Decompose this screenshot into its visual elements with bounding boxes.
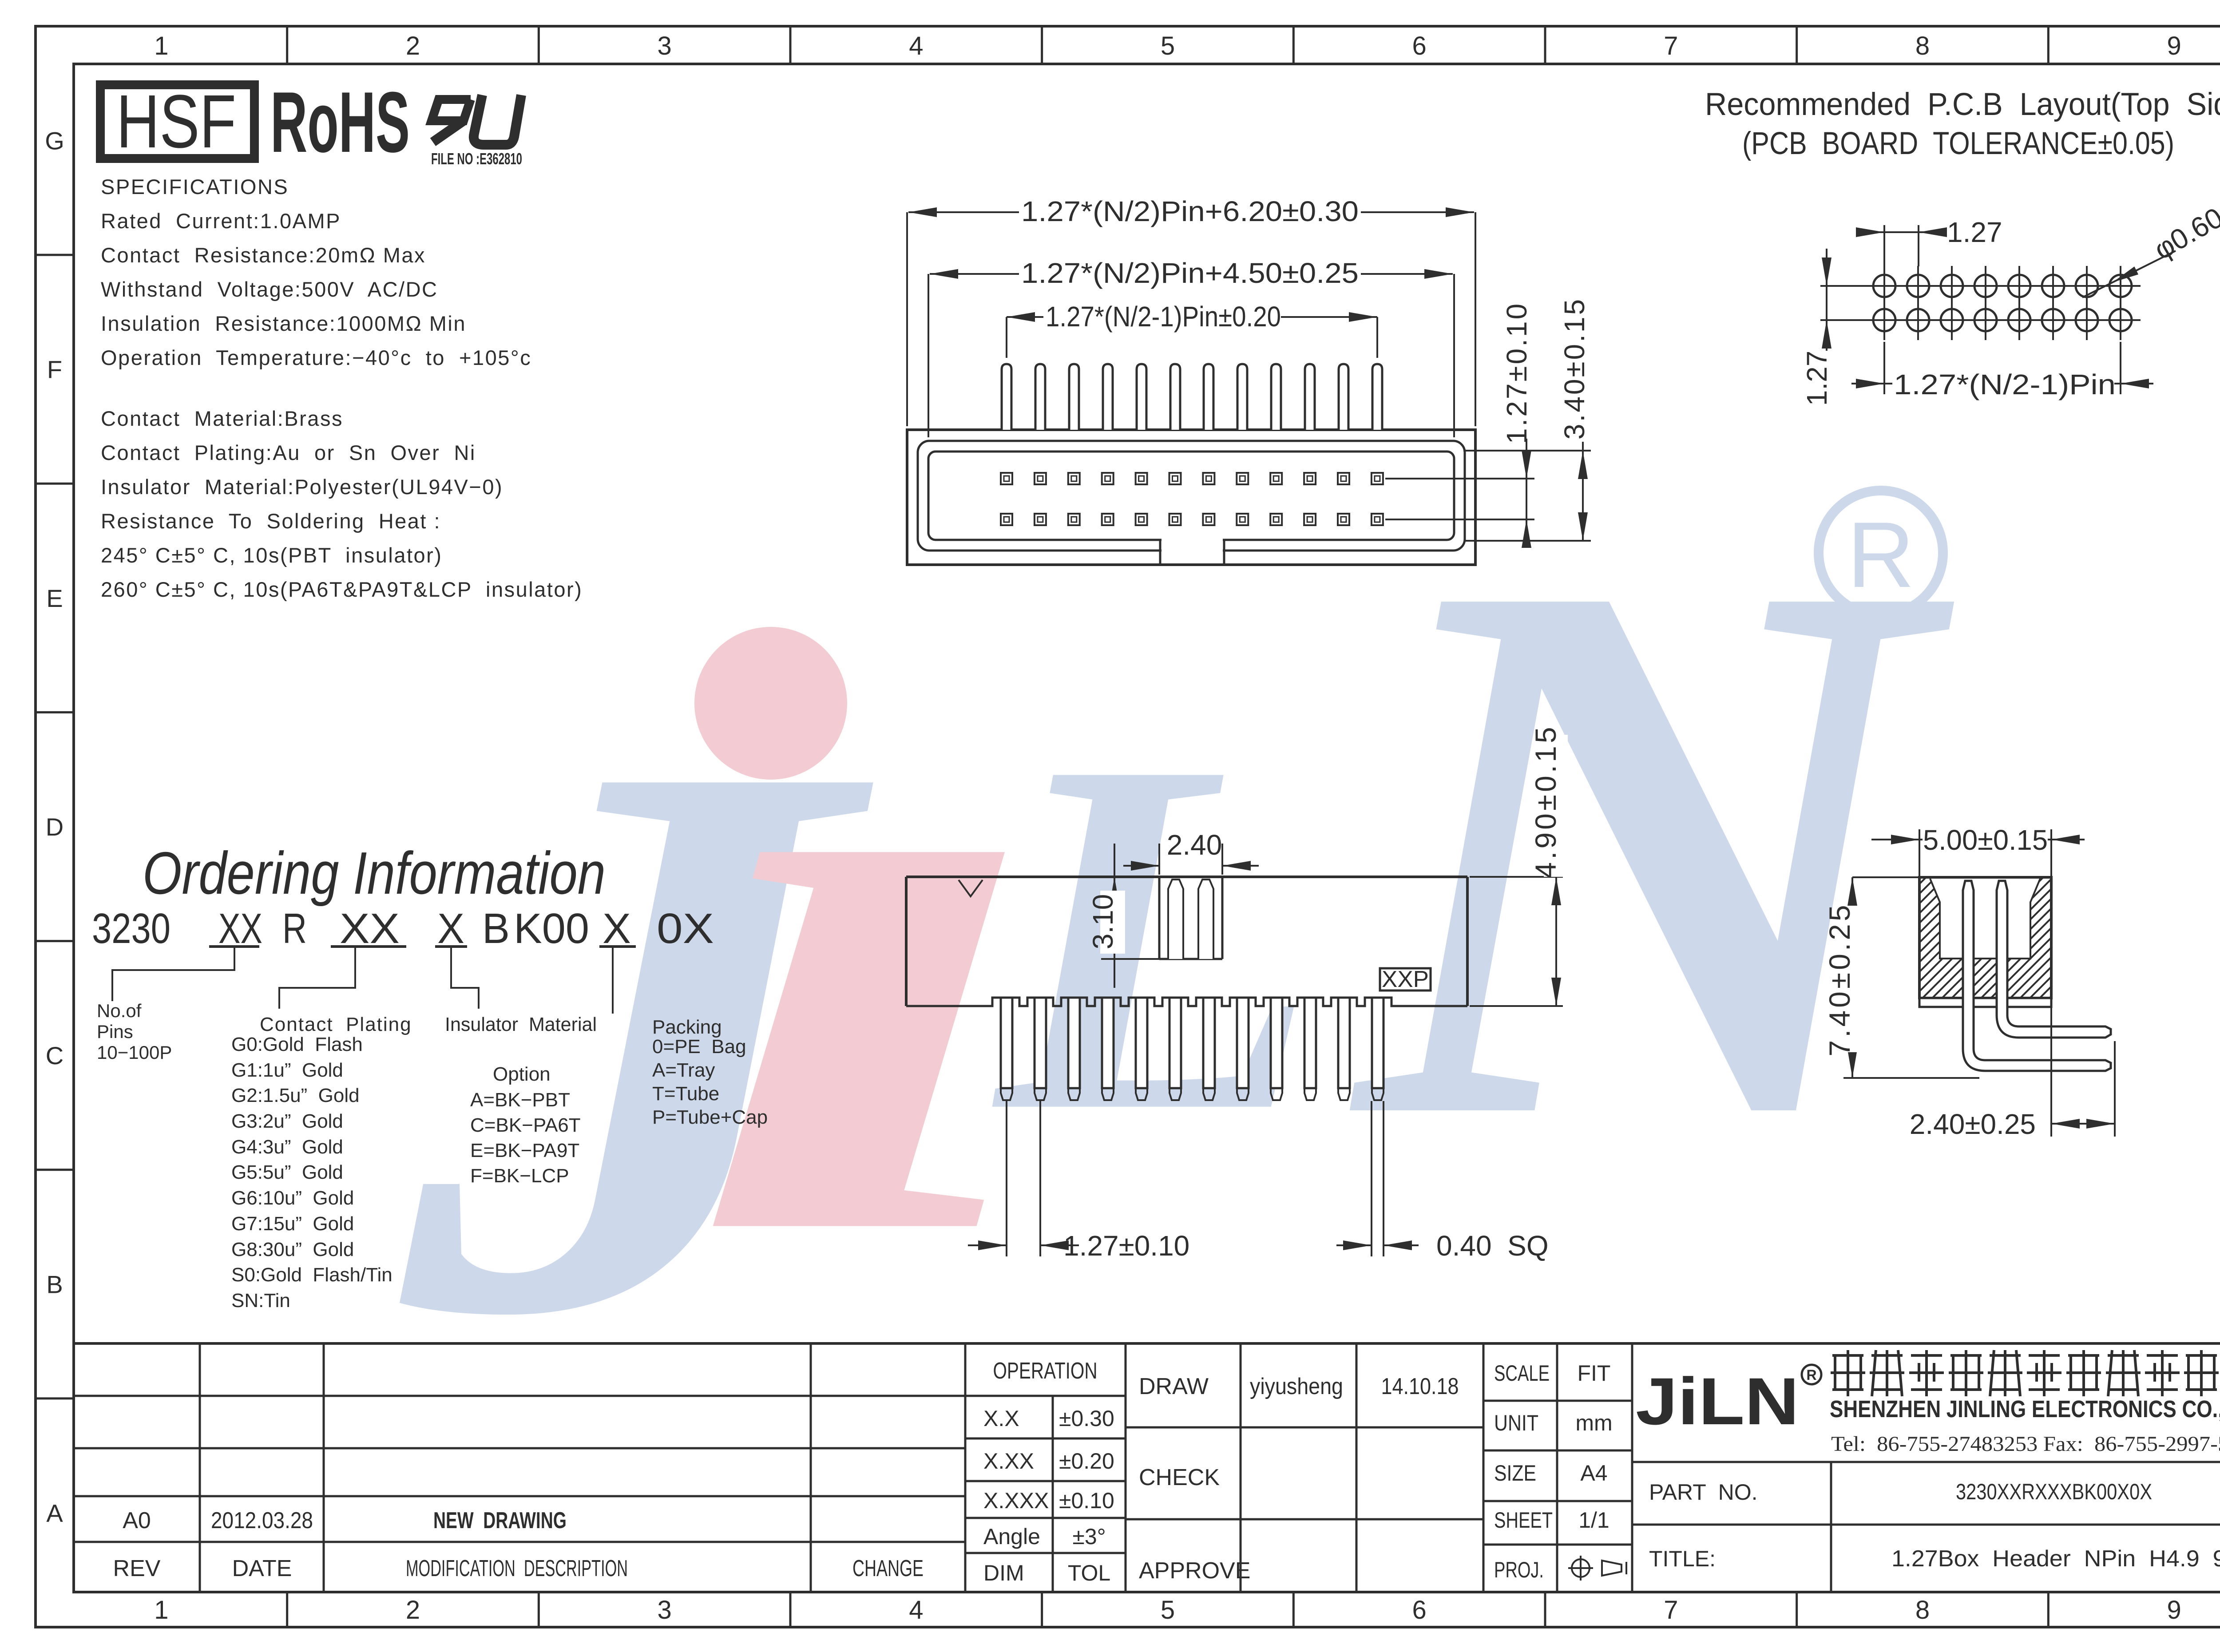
svg-text:FILE NO :E362810: FILE NO :E362810 — [431, 150, 522, 168]
svg-text:±3°: ±3° — [1072, 1524, 1106, 1549]
svg-text:CHANGE: CHANGE — [852, 1556, 924, 1581]
svg-text:Ordering Information: Ordering Information — [143, 840, 606, 907]
svg-text:Option: Option — [493, 1063, 551, 1085]
svg-text:A4: A4 — [1580, 1461, 1607, 1486]
svg-text:R: R — [1806, 1367, 1816, 1383]
svg-text:G8:30u” Gold: G8:30u” Gold — [231, 1239, 354, 1260]
svg-text:R: R — [282, 905, 307, 952]
svg-text:R: R — [1847, 503, 1915, 607]
svg-text:G1:1u” Gold: G1:1u” Gold — [231, 1059, 343, 1081]
svg-text:G2:1.5u” Gold: G2:1.5u” Gold — [231, 1085, 360, 1106]
svg-text:XXP: XXP — [1382, 967, 1429, 992]
svg-text:G3:2u” Gold: G3:2u” Gold — [231, 1110, 343, 1132]
svg-text:2.40: 2.40 — [1167, 829, 1222, 861]
svg-text:14.10.18: 14.10.18 — [1381, 1374, 1459, 1399]
svg-text:B: B — [482, 905, 510, 952]
svg-text:1.27: 1.27 — [1801, 351, 1833, 406]
svg-text:G7:15u” Gold: G7:15u” Gold — [231, 1213, 354, 1235]
svg-text:F=BK−LCP: F=BK−LCP — [470, 1165, 569, 1187]
svg-text:REV: REV — [113, 1556, 161, 1581]
svg-text:G4:3u” Gold: G4:3u” Gold — [231, 1136, 343, 1158]
svg-text:B: B — [46, 1270, 63, 1298]
svg-text:3: 3 — [658, 32, 672, 60]
svg-text:260° C±5° C, 10s(PA6T&PA9T&LCP: 260° C±5° C, 10s(PA6T&PA9T&LCP insulator… — [101, 578, 583, 601]
svg-text:yiyusheng: yiyusheng — [1250, 1374, 1343, 1399]
svg-text:X: X — [603, 905, 631, 952]
svg-text:4: 4 — [909, 1596, 923, 1624]
svg-text:1.27: 1.27 — [1947, 216, 2002, 248]
svg-text:Contact Material:Brass: Contact Material:Brass — [101, 407, 343, 430]
svg-text:9: 9 — [2167, 1596, 2181, 1624]
svg-text:C: C — [46, 1042, 63, 1070]
svg-text:9: 9 — [2167, 32, 2181, 60]
svg-text:±0.20: ±0.20 — [1059, 1449, 1114, 1474]
svg-text:FIT: FIT — [1578, 1361, 1611, 1386]
svg-text:PART NO.: PART NO. — [1649, 1480, 1758, 1505]
svg-text:A0: A0 — [123, 1508, 151, 1533]
svg-text:(PCB BOARD TOLERANCE±0.05): (PCB BOARD TOLERANCE±0.05) — [1742, 126, 2174, 161]
svg-text:SHEET: SHEET — [1494, 1508, 1553, 1533]
svg-text:C=BK−PA6T: C=BK−PA6T — [470, 1114, 581, 1136]
svg-text:JiLN: JiLN — [1636, 1364, 1799, 1438]
svg-text:NEW DRAWING: NEW DRAWING — [433, 1508, 567, 1533]
svg-text:E=BK−PA9T: E=BK−PA9T — [470, 1140, 579, 1161]
svg-text:Packing: Packing — [652, 1016, 722, 1038]
svg-text:SIZE: SIZE — [1494, 1461, 1536, 1486]
svg-text:7: 7 — [1664, 1596, 1678, 1624]
svg-text:0.40 SQ: 0.40 SQ — [1436, 1230, 1549, 1262]
svg-text:SPECIFICATIONS: SPECIFICATIONS — [101, 175, 289, 198]
svg-text:P=Tube+Cap: P=Tube+Cap — [652, 1106, 768, 1128]
svg-text:2: 2 — [406, 32, 420, 60]
svg-text:APPROVE: APPROVE — [1139, 1558, 1250, 1584]
svg-text:MODIFICATION DESCRIPTION: MODIFICATION DESCRIPTION — [406, 1556, 628, 1581]
svg-text:XX: XX — [340, 905, 400, 952]
svg-text:E: E — [46, 584, 63, 612]
svg-text:1: 1 — [154, 32, 168, 60]
svg-text:mm: mm — [1575, 1410, 1612, 1435]
svg-text:0X: 0X — [657, 905, 714, 952]
svg-text:±0.10: ±0.10 — [1059, 1488, 1114, 1513]
svg-text:2.40±0.25: 2.40±0.25 — [1910, 1108, 2036, 1140]
svg-text:Insulation Resistance:1000MΩ: Insulation Resistance:1000MΩ Min — [101, 312, 466, 335]
svg-text:Recommended P.C.B Layout(Top: Recommended P.C.B Layout(Top Side) — [1705, 87, 2220, 122]
svg-text:3.10: 3.10 — [1087, 894, 1119, 950]
svg-text:D: D — [46, 813, 63, 841]
svg-text:X: X — [437, 905, 464, 952]
svg-text:A=BK−PBT: A=BK−PBT — [470, 1089, 570, 1111]
svg-text:Rated Current:1.0AMP: Rated Current:1.0AMP — [101, 209, 341, 233]
svg-text:DRAW: DRAW — [1139, 1374, 1209, 1399]
svg-text:Tel: 86-755-27483253 Fax: 86: Tel: 86-755-27483253 Fax: 86-755-2997-55… — [1831, 1432, 2220, 1456]
svg-text:SCALE: SCALE — [1494, 1361, 1550, 1386]
svg-text:2012.03.28: 2012.03.28 — [211, 1508, 313, 1533]
svg-text:1.27±0.10: 1.27±0.10 — [1501, 302, 1533, 444]
svg-text:DATE: DATE — [232, 1556, 292, 1581]
svg-text:1.27*(N/2-1)Pin: 1.27*(N/2-1)Pin — [1894, 368, 2116, 400]
svg-text:TOL: TOL — [1068, 1561, 1110, 1585]
svg-text:CHECK: CHECK — [1139, 1465, 1220, 1490]
svg-text:UNIT: UNIT — [1494, 1410, 1538, 1435]
svg-text:PROJ.: PROJ. — [1494, 1557, 1544, 1582]
svg-text:RoHS: RoHS — [270, 74, 410, 170]
svg-text:SHENZHEN JINLING ELECTRONICS C: SHENZHEN JINLING ELECTRONICS CO.,LTD — [1830, 1396, 2220, 1422]
svg-text:1.27±0.10: 1.27±0.10 — [1063, 1230, 1189, 1262]
svg-text:Operation Temperature:−40°c: Operation Temperature:−40°c to +105°c — [101, 346, 531, 369]
svg-text:1: 1 — [154, 1596, 168, 1624]
svg-text:F: F — [47, 356, 62, 384]
svg-text:G: G — [45, 127, 64, 155]
svg-text:TITLE:: TITLE: — [1649, 1546, 1716, 1571]
svg-text:S0:Gold Flash/Tin: S0:Gold Flash/Tin — [231, 1264, 392, 1286]
svg-text:Contact Plating: Contact Plating — [260, 1014, 412, 1035]
svg-text:HSF: HSF — [116, 79, 236, 164]
svg-text:0=PE Bag: 0=PE Bag — [652, 1036, 746, 1058]
svg-text:G6:10u” Gold: G6:10u” Gold — [231, 1187, 354, 1209]
svg-text:X.XXX: X.XXX — [983, 1488, 1049, 1513]
svg-text:Contact Resistance:20mΩ Max: Contact Resistance:20mΩ Max — [101, 243, 426, 267]
svg-text:No.of: No.of — [97, 1000, 142, 1021]
svg-text:4: 4 — [909, 32, 923, 60]
svg-text:A: A — [46, 1499, 63, 1527]
svg-text:K00: K00 — [514, 905, 589, 952]
svg-text:Insulator Material: Insulator Material — [445, 1014, 597, 1035]
svg-text:DIM: DIM — [983, 1561, 1024, 1585]
svg-text:Withstand Voltage:500V AC/DC: Withstand Voltage:500V AC/DC — [101, 277, 438, 301]
svg-text:1.27*(N/2-1)Pin±0.20: 1.27*(N/2-1)Pin±0.20 — [1046, 301, 1281, 333]
svg-text:Angle: Angle — [983, 1524, 1040, 1549]
svg-text:Pins: Pins — [97, 1021, 133, 1042]
svg-text:SN:Tin: SN:Tin — [231, 1290, 290, 1311]
svg-text:XX: XX — [218, 905, 262, 952]
svg-text:3: 3 — [658, 1596, 672, 1624]
svg-text:Contact Plating:Au or Sn O: Contact Plating:Au or Sn Over Ni — [101, 441, 476, 464]
svg-text:±0.30: ±0.30 — [1059, 1406, 1114, 1431]
svg-text:1.27Box Header NPin H4.9 9: 1.27Box Header NPin H4.9 90° — [1891, 1546, 2220, 1572]
svg-text:X.X: X.X — [983, 1406, 1019, 1431]
svg-text:3230XXRXXXBK00X0X: 3230XXRXXXBK00X0X — [1956, 1479, 2152, 1504]
svg-text:ı: ı — [682, 500, 1063, 1402]
svg-text:X.XX: X.XX — [983, 1449, 1034, 1474]
svg-text:7: 7 — [1664, 32, 1678, 60]
svg-text:8: 8 — [1915, 1596, 1930, 1624]
svg-text:1.27*(N/2)Pin+4.50±0.25: 1.27*(N/2)Pin+4.50±0.25 — [1021, 257, 1359, 289]
svg-text:5.00±0.15: 5.00±0.15 — [1923, 824, 2048, 856]
svg-text:4.90±0.15: 4.90±0.15 — [1529, 724, 1562, 878]
svg-text:8: 8 — [1915, 32, 1930, 60]
svg-text:6: 6 — [1412, 32, 1427, 60]
svg-text:OPERATION: OPERATION — [993, 1358, 1098, 1384]
svg-text:5: 5 — [1161, 1596, 1175, 1624]
svg-text:10−100P: 10−100P — [97, 1042, 172, 1063]
svg-text:245° C±5° C, 10s(PBT insulato: 245° C±5° C, 10s(PBT insulator) — [101, 543, 442, 567]
svg-text:Insulator Material:Polyester(: Insulator Material:Polyester(UL94V−0) — [101, 475, 503, 499]
svg-text:7.40±0.25: 7.40±0.25 — [1823, 902, 1856, 1056]
svg-text:1.27*(N/2)Pin+6.20±0.30: 1.27*(N/2)Pin+6.20±0.30 — [1021, 195, 1359, 227]
svg-text:5: 5 — [1161, 32, 1175, 60]
svg-text:3.40±0.15: 3.40±0.15 — [1558, 297, 1590, 440]
svg-text:G5:5u” Gold: G5:5u” Gold — [231, 1161, 343, 1183]
svg-text:T=Tube: T=Tube — [652, 1083, 719, 1105]
svg-text:3230: 3230 — [92, 905, 170, 952]
svg-text:6: 6 — [1412, 1596, 1427, 1624]
svg-text:G0:Gold Flash: G0:Gold Flash — [231, 1034, 363, 1055]
svg-text:A=Tray: A=Tray — [652, 1059, 715, 1081]
svg-text:Resistance To Soldering Hea: Resistance To Soldering Heat : — [101, 509, 441, 533]
svg-text:2: 2 — [406, 1596, 420, 1624]
svg-text:1/1: 1/1 — [1578, 1508, 1609, 1533]
